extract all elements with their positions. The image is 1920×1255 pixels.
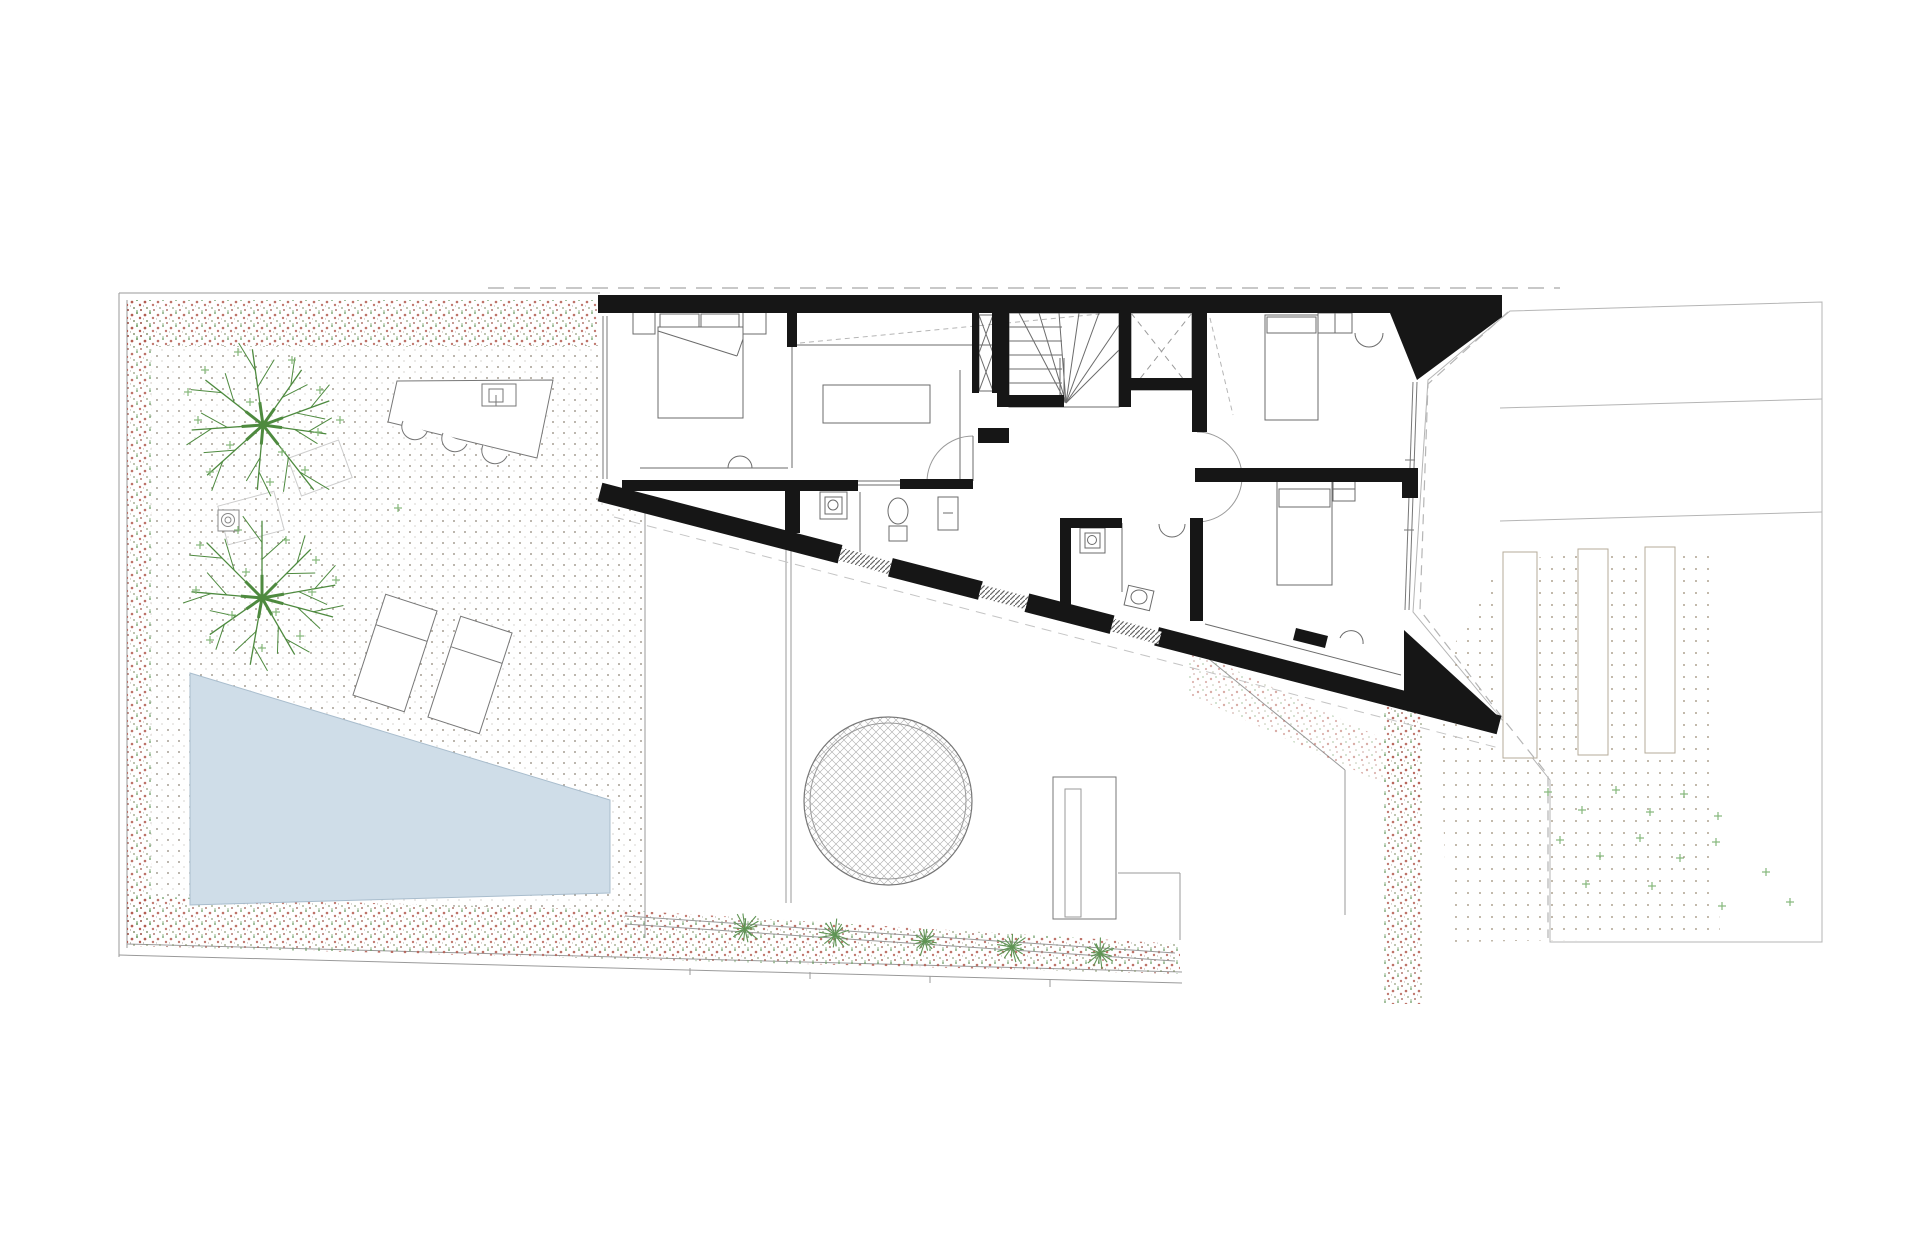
garden-tree-1-trunk [242, 425, 263, 426]
wall-shaft-right [1192, 313, 1207, 432]
right-strip-2 [1578, 549, 1608, 755]
south-glazing-2 [980, 591, 1027, 603]
hedge-band-left [127, 300, 152, 944]
wall-bed3-north [1195, 468, 1410, 482]
hedge-strip-vertical [1383, 704, 1423, 1004]
wall-north [598, 295, 1502, 313]
wall-bath1-west [785, 485, 800, 533]
courtyard-bench [1053, 777, 1116, 919]
bath1-toilet-tank [889, 526, 907, 541]
wall-stair-bottom [1009, 395, 1064, 407]
hedge-band-bottom [127, 896, 1180, 974]
wall-bath1-north [622, 480, 858, 491]
wall-duct-right [992, 313, 997, 393]
floor-plan-page [0, 0, 1920, 1255]
floor-plan-canvas [0, 0, 1920, 1255]
wall-hall-stub [978, 428, 1009, 443]
patio-grill [482, 384, 516, 406]
wall-duct-left [972, 313, 979, 393]
right-strip-1 [1503, 552, 1537, 758]
wall-stair-left [997, 313, 1009, 407]
wall-bath1-pocket [900, 479, 973, 489]
tree-grate-circle [804, 717, 972, 885]
wall-bath2-east [1190, 518, 1203, 621]
plan-scene [119, 288, 1822, 1004]
south-glazing-3 [1112, 625, 1160, 638]
right-strip-3 [1645, 547, 1675, 753]
planter-shrub-1 [745, 918, 746, 929]
hedge-band-top [127, 300, 598, 347]
wall-shaft-bottom [1131, 378, 1192, 390]
wall-bed3-stub [1402, 468, 1418, 498]
garden-tree-2-twig [286, 573, 315, 574]
building-floor [598, 295, 1502, 716]
wall-stair-right [1119, 313, 1131, 407]
wall-stub-bed1 [787, 313, 797, 347]
